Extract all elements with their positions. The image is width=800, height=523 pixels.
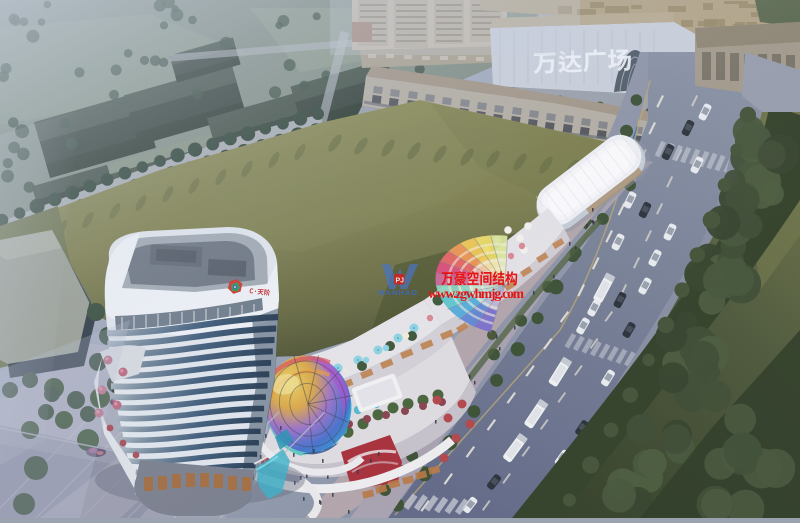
svg-text:WANHAO: WANHAO (378, 290, 418, 297)
svg-text:PJ: PJ (396, 278, 405, 285)
svg-text:www.zgwhmjg.com: www.zgwhmjg.com (428, 286, 525, 301)
